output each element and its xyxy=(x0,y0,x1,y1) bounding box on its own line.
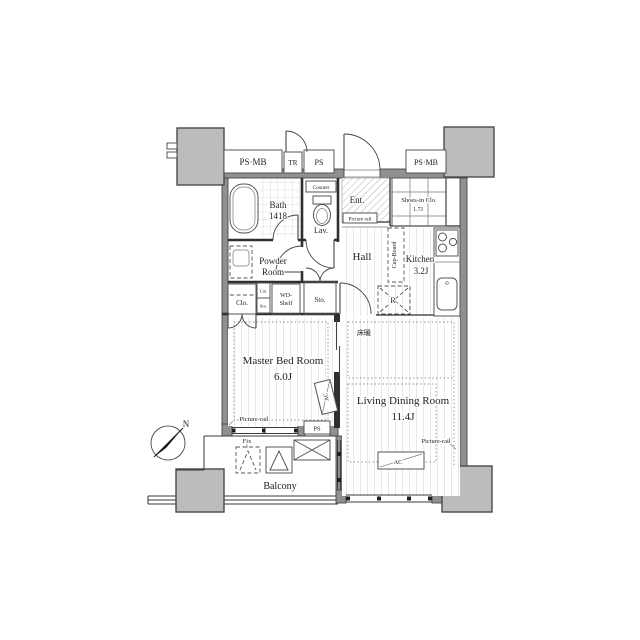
left-outer-wall xyxy=(222,178,228,426)
bath-label: Bath xyxy=(270,200,287,210)
powder-room-label-2: Room xyxy=(262,267,284,277)
psmb-right-label: PS·MB xyxy=(414,158,438,167)
floor-heating-label: 床暖 xyxy=(357,328,371,337)
lavatory: Counter Lav. xyxy=(306,181,336,235)
toilet-bowl xyxy=(317,209,328,224)
closet-label: Clo. xyxy=(236,299,248,307)
pillar-vent-tab xyxy=(167,143,177,149)
fix-window-label: Fix xyxy=(243,438,252,445)
shoes-closet-label: Shoes-in Clo. xyxy=(401,197,437,204)
mbr-picture-rail-label: Picture-rail xyxy=(239,416,268,423)
north-needle-icon xyxy=(154,428,183,457)
bath-size-label: 1418 xyxy=(269,211,288,221)
balcony-divider-wall xyxy=(336,436,342,494)
linen-label: Lin. xyxy=(260,289,268,294)
hall-label: Hall xyxy=(353,251,372,263)
powder-room: Powder Room xyxy=(230,246,287,278)
pillar-top-left xyxy=(177,128,224,185)
balcony-triangle-icon xyxy=(270,451,288,470)
storage-row: Clo. Lin. Sto. WD- Shelf Sto. xyxy=(228,282,336,314)
mbr-label: Master Bed Room xyxy=(243,355,324,367)
kitchen-size-label: 3.2J xyxy=(414,266,429,276)
psmb-left-label: PS·MB xyxy=(239,157,266,167)
cupboard-label: Cup-Board xyxy=(392,242,398,269)
entry-door-arc xyxy=(344,134,380,170)
washer-pan xyxy=(233,250,249,266)
fridge-label: R xyxy=(390,296,396,305)
ps-top-label: PS xyxy=(315,158,324,167)
toilet-tank xyxy=(313,196,331,204)
ld-size-label: 11.4J xyxy=(391,411,415,423)
entrance-picture-rail-label: Picture rail xyxy=(349,217,372,223)
ld-ac-label: AC xyxy=(393,459,402,466)
wd-shelf-label-2: Shelf xyxy=(280,300,293,307)
tr-door-arc xyxy=(286,131,307,152)
storage-small-label: Sto. xyxy=(260,304,267,309)
shoes-in-closet: Shoes-in Clo. 1.7J xyxy=(392,178,446,226)
shaft-boxes: PS·MB TR PS PS·MB xyxy=(224,131,446,173)
hall-storage-door-arc xyxy=(320,268,334,282)
powder-room-label-1: Powder xyxy=(259,256,287,266)
ps-lower: PS xyxy=(304,421,330,434)
compass-icon: N xyxy=(151,419,190,460)
compass-north-label: N xyxy=(183,419,190,429)
shoes-closet-size: 1.7J xyxy=(413,207,424,213)
kitchen-label: Kitchen xyxy=(406,254,435,264)
fix-hatch-triangle xyxy=(240,451,256,470)
lav-counter-label: Counter xyxy=(313,185,330,191)
hall-floor xyxy=(340,228,388,316)
pillar-vent-tab xyxy=(167,152,177,158)
entrance-label: Ent. xyxy=(350,195,365,205)
lav-label: Lav. xyxy=(314,226,328,235)
ld-label: Living Dining Room xyxy=(357,395,450,407)
balcony-label: Balcony xyxy=(263,481,296,492)
wd-shelf-label-1: WD- xyxy=(280,293,292,299)
hall-storage-label: Sto. xyxy=(314,296,325,304)
right-outer-wall xyxy=(460,178,467,466)
tr-label: TR xyxy=(289,159,298,167)
bathtub-icon xyxy=(230,184,258,233)
ld-picture-rail-label: Picture-rail xyxy=(421,438,450,445)
wd-shelf-box xyxy=(272,284,300,314)
ps-lower-label: PS xyxy=(313,426,321,433)
lav-door-arc xyxy=(306,240,334,268)
pillar-bottom-left xyxy=(176,469,224,512)
toilet-icon xyxy=(314,205,331,226)
hall: Hall xyxy=(353,251,372,263)
floor-plan-canvas: PS·MB TR PS PS·MB xyxy=(0,0,640,640)
hall-storage-door-arc xyxy=(306,268,320,282)
mbr-size-label: 6.0J xyxy=(274,371,293,383)
pillar-top-right xyxy=(444,127,494,177)
